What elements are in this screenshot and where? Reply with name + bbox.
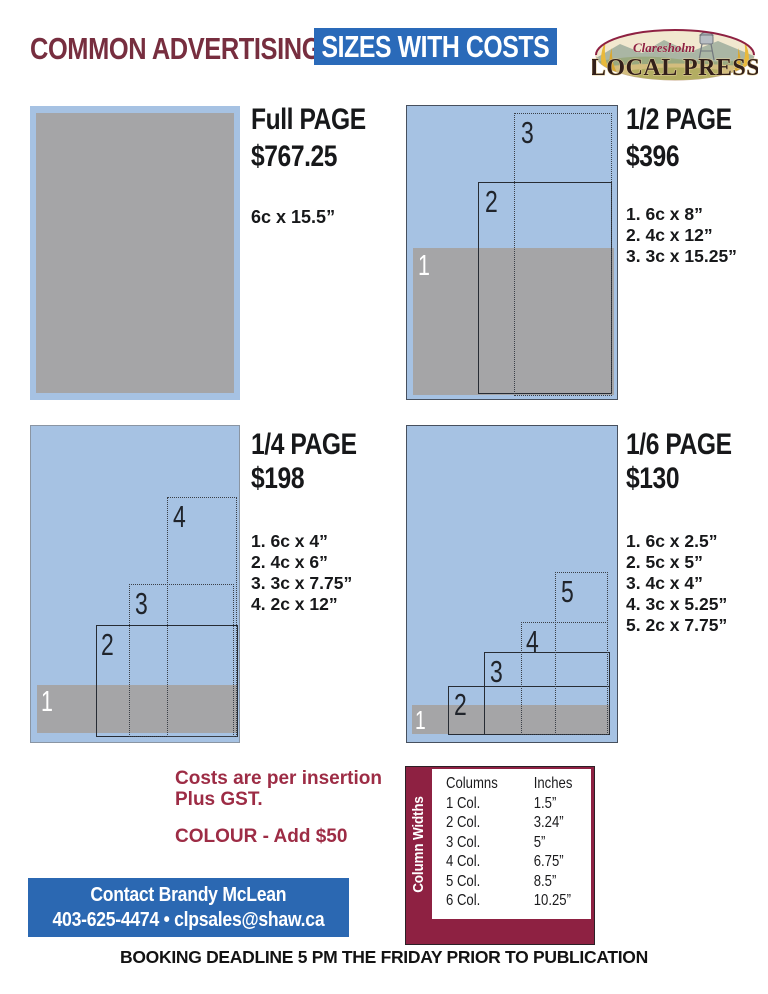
panel-quarter-page-diagram: 4 3 2 1 xyxy=(30,425,240,743)
size-item: 1. 6c x 2.5” xyxy=(626,531,727,552)
local-press-logo: Claresholm LOCAL PRESS xyxy=(592,26,758,84)
cell-columns: 3 Col. xyxy=(446,833,534,853)
contact-phone-email: 403-625-4474 • clpsales@shaw.ca xyxy=(53,908,325,932)
size-item: 2. 5c x 5” xyxy=(626,552,727,573)
shape-label-4: 4 xyxy=(173,501,185,532)
page-title-highlight: SIZES WITH COSTS xyxy=(314,28,557,65)
size-item: 3. 4c x 4” xyxy=(626,573,727,594)
cell-inches: 1.5” xyxy=(534,794,557,814)
size-item: 5. 2c x 7.75” xyxy=(626,615,727,636)
table-row: 6 Col. 10.25” xyxy=(446,891,572,911)
shape-label-3: 3 xyxy=(490,656,502,687)
table-header-row: Columns Inches xyxy=(446,774,572,794)
size-item: 2. 4c x 6” xyxy=(251,552,352,573)
cell-columns: 5 Col. xyxy=(446,872,534,892)
panel-price: $130 xyxy=(626,462,679,495)
size-item: 2. 4c x 12” xyxy=(626,225,737,246)
cell-columns: 1 Col. xyxy=(446,794,534,814)
size-item: 1. 6c x 4” xyxy=(251,531,352,552)
contact-name: Contact Brandy McLean xyxy=(91,883,287,907)
column-widths-table: Columns Inches 1 Col. 1.5” 2 Col. 3.24” … xyxy=(446,774,600,911)
shape-label-4: 4 xyxy=(526,626,538,657)
cell-inches: 3.24” xyxy=(534,813,564,833)
size-item: 3. 3c x 7.75” xyxy=(251,573,352,594)
costs-note: Costs are per insertion Plus GST. xyxy=(175,768,382,810)
column-widths-side-band: Column Widths xyxy=(406,769,432,919)
shape-label-1: 1 xyxy=(41,688,52,717)
table-row: 3 Col. 5” xyxy=(446,833,572,853)
size-item: 3. 3c x 15.25” xyxy=(626,246,737,267)
cell-inches: 10.25” xyxy=(534,891,571,911)
logo-name-text: LOCAL PRESS xyxy=(592,55,758,81)
panel-title: Full PAGE xyxy=(251,103,366,136)
colour-note: COLOUR - Add $50 xyxy=(175,826,347,848)
panel-price: $396 xyxy=(626,140,679,173)
cell-columns: 4 Col. xyxy=(446,852,534,872)
column-widths-box: Columns Inches 1 Col. 1.5” 2 Col. 3.24” … xyxy=(405,766,595,945)
shape-label-3: 3 xyxy=(135,588,147,619)
booking-deadline: BOOKING DEADLINE 5 PM THE FRIDAY PRIOR T… xyxy=(0,947,768,968)
panel-title: 1/2 PAGE xyxy=(626,103,732,136)
page-title: COMMON ADVERTISING xyxy=(30,31,321,67)
table-row: 5 Col. 8.5” xyxy=(446,872,572,892)
column-widths-side-label: Column Widths xyxy=(411,796,428,893)
col-header-inches: Inches xyxy=(534,774,573,794)
panel-sixth-page-diagram: 5 4 3 2 1 xyxy=(406,425,618,743)
costs-note-line1: Costs are per insertion xyxy=(175,768,382,789)
rate-card-page: COMMON ADVERTISING SIZES WITH COSTS xyxy=(0,0,768,994)
logo-illustration: Claresholm LOCAL PRESS xyxy=(592,26,758,84)
panel-price: $767.25 xyxy=(251,140,337,173)
shape-box-3 xyxy=(514,113,612,396)
table-row: 4 Col. 6.75” xyxy=(446,852,572,872)
size-item: 4. 3c x 5.25” xyxy=(626,594,727,615)
panel-title: 1/4 PAGE xyxy=(251,428,357,461)
shape-label-1: 1 xyxy=(415,707,425,733)
shape-label-5: 5 xyxy=(561,576,573,607)
cell-columns: 6 Col. xyxy=(446,891,534,911)
size-item: 6c x 15.5” xyxy=(251,207,335,228)
table-row: 2 Col. 3.24” xyxy=(446,813,572,833)
panel-full-page-diagram xyxy=(30,106,240,400)
column-widths-table-area: Columns Inches 1 Col. 1.5” 2 Col. 3.24” … xyxy=(432,769,591,919)
size-item: 1. 6c x 8” xyxy=(626,204,737,225)
col-header-columns: Columns xyxy=(446,774,534,794)
size-list: 1. 6c x 8” 2. 4c x 12” 3. 3c x 15.25” xyxy=(626,204,737,267)
shape-label-1: 1 xyxy=(418,252,429,281)
logo-town-text: Claresholm xyxy=(633,40,695,55)
size-list: 1. 6c x 2.5” 2. 5c x 5” 3. 4c x 4” 4. 3c… xyxy=(626,531,727,636)
cell-columns: 2 Col. xyxy=(446,813,534,833)
costs-note-line2: Plus GST. xyxy=(175,789,382,810)
contact-box: Contact Brandy McLean 403-625-4474 • clp… xyxy=(28,878,349,937)
shape-label-3: 3 xyxy=(521,117,533,148)
panel-title: 1/6 PAGE xyxy=(626,428,732,461)
page-title-highlight-text: SIZES WITH COSTS xyxy=(322,29,550,65)
cell-inches: 8.5” xyxy=(534,872,557,892)
panel-price: $198 xyxy=(251,462,304,495)
size-item: 4. 2c x 12” xyxy=(251,594,352,615)
cell-inches: 6.75” xyxy=(534,852,564,872)
table-row: 1 Col. 1.5” xyxy=(446,794,572,814)
panel-half-page-diagram: 3 2 1 xyxy=(406,105,618,400)
cell-inches: 5” xyxy=(534,833,546,853)
size-list: 1. 6c x 4” 2. 4c x 6” 3. 3c x 7.75” 4. 2… xyxy=(251,531,352,615)
shape-label-2: 2 xyxy=(454,689,466,720)
full-page-ad-area xyxy=(36,113,234,393)
shape-label-2: 2 xyxy=(485,186,497,217)
shape-label-2: 2 xyxy=(101,629,113,660)
